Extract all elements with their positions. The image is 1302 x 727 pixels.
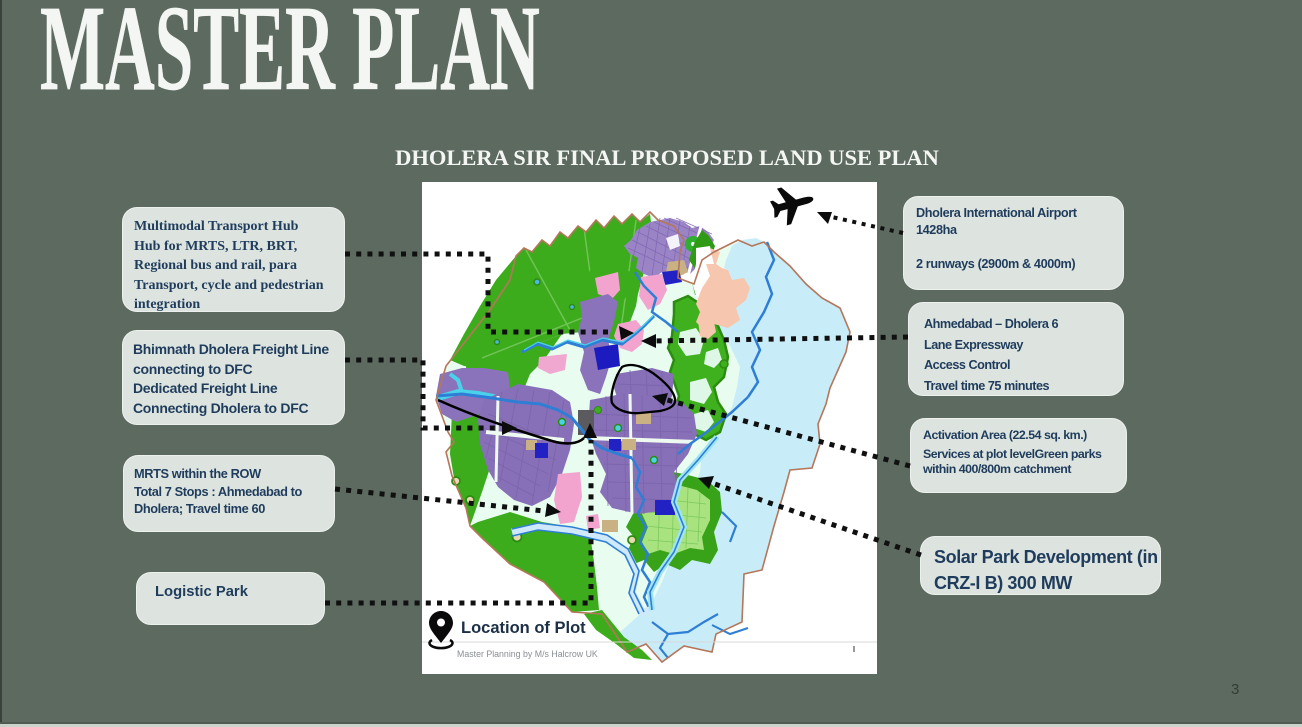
svg-text:Master Planning by M/s Halcrow: Master Planning by M/s Halcrow UK: [457, 649, 598, 659]
svg-text:Location of Plot: Location of Plot: [461, 619, 586, 637]
